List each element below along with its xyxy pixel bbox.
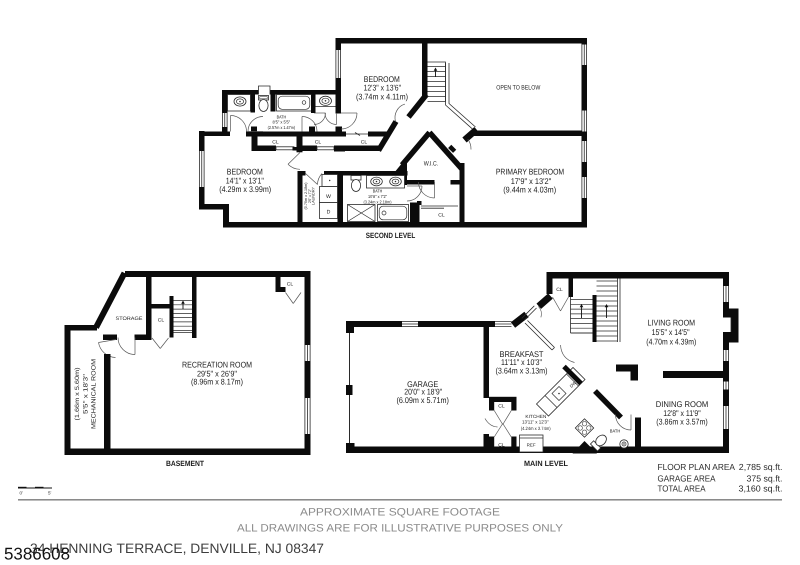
svg-text:CL: CL <box>498 403 505 409</box>
svg-text:REF: REF <box>527 443 536 448</box>
svg-text:(4.29m x 3.99m): (4.29m x 3.99m) <box>219 184 271 194</box>
svg-text:(4.70m x 4.39m): (4.70m x 4.39m) <box>646 337 696 347</box>
svg-text:TOTAL AREA: TOTAL AREA <box>658 483 706 493</box>
svg-text:3,160 sq.ft.: 3,160 sq.ft. <box>739 483 783 493</box>
svg-text:10'8" x 7'2": 10'8" x 7'2" <box>368 194 387 199</box>
svg-text:PRIMARY BEDROOM: PRIMARY BEDROOM <box>496 166 564 176</box>
svg-text:CL: CL <box>158 318 165 324</box>
svg-text:(2.57m x 1.47m): (2.57m x 1.47m) <box>268 125 296 130</box>
svg-text:2'6" x 7'2": 2'6" x 7'2" <box>308 188 312 203</box>
svg-text:5386608: 5386608 <box>4 545 70 564</box>
svg-text:W: W <box>326 194 331 200</box>
svg-text:MAIN LEVEL: MAIN LEVEL <box>524 459 568 468</box>
svg-text:SECOND LEVEL: SECOND LEVEL <box>366 231 416 240</box>
svg-text:CL: CL <box>438 213 445 219</box>
svg-text:BATH: BATH <box>610 429 621 434</box>
svg-text:BATH: BATH <box>373 188 383 193</box>
svg-text:(1.66m x 5.60m): (1.66m x 5.60m) <box>74 368 81 421</box>
svg-text:(6.09m x 5.71m): (6.09m x 5.71m) <box>396 395 449 405</box>
svg-text:CL: CL <box>556 287 563 293</box>
svg-text:GARAGE AREA: GARAGE AREA <box>658 473 716 483</box>
svg-text:(3.86m x 3.57m): (3.86m x 3.57m) <box>656 416 708 426</box>
svg-text:(3.24m x 2.18m): (3.24m x 2.18m) <box>364 199 392 204</box>
svg-text:15'5" x 14'5": 15'5" x 14'5" <box>652 327 690 337</box>
svg-text:2,785 sq.ft.: 2,785 sq.ft. <box>739 462 783 472</box>
svg-text:(3.64m x 3.13m): (3.64m x 3.13m) <box>496 366 548 376</box>
svg-text:CL: CL <box>287 282 294 288</box>
svg-text:ALL DRAWINGS ARE FOR ILLUSTRAT: ALL DRAWINGS ARE FOR ILLUSTRATIVE PURPOS… <box>237 523 563 535</box>
svg-text:5'5" x 18'3": 5'5" x 18'3" <box>82 374 89 414</box>
svg-text:0': 0' <box>20 491 24 496</box>
svg-text:LIVING ROOM: LIVING ROOM <box>648 317 696 327</box>
svg-text:(9.44m x 4.03m): (9.44m x 4.03m) <box>503 184 556 194</box>
svg-text:(3.74m x 4.11m): (3.74m x 4.11m) <box>356 91 408 101</box>
svg-text:375 sq.ft.: 375 sq.ft. <box>747 473 783 483</box>
svg-text:FLOOR PLAN AREA: FLOOR PLAN AREA <box>658 462 736 472</box>
svg-text:CL: CL <box>361 140 368 146</box>
svg-text:13'11" x 12'3": 13'11" x 12'3" <box>522 420 549 425</box>
svg-text:CL: CL <box>498 442 505 448</box>
svg-text:KITCHEN: KITCHEN <box>525 414 546 419</box>
svg-text:D: D <box>327 210 331 216</box>
svg-text:LAUNDRY: LAUNDRY <box>312 187 316 205</box>
svg-text:(0.76m x 2.18m): (0.76m x 2.18m) <box>304 182 308 210</box>
svg-text:CL: CL <box>272 140 279 146</box>
svg-text:5': 5' <box>48 491 52 496</box>
svg-text:APPROXIMATE SQUARE FOOTAGE: APPROXIMATE SQUARE FOOTAGE <box>300 507 500 519</box>
svg-text:OPEN TO BELOW: OPEN TO BELOW <box>496 85 540 92</box>
svg-text:MECHANICAL ROOM: MECHANICAL ROOM <box>91 359 98 429</box>
svg-text:(4.24m x 3.74m): (4.24m x 3.74m) <box>521 426 551 431</box>
svg-text:STORAGE: STORAGE <box>116 316 144 322</box>
svg-text:8'5" x 5'5": 8'5" x 5'5" <box>273 120 291 125</box>
svg-text:CL: CL <box>315 140 322 146</box>
svg-text:W.I.C.: W.I.C. <box>424 161 439 168</box>
svg-text:BASEMENT: BASEMENT <box>166 459 204 468</box>
svg-text:34 HENNING TERRACE, DENVILLE,: 34 HENNING TERRACE, DENVILLE, NJ 08347 <box>30 541 324 556</box>
svg-text:(8.96m x 8.17m): (8.96m x 8.17m) <box>191 377 243 387</box>
